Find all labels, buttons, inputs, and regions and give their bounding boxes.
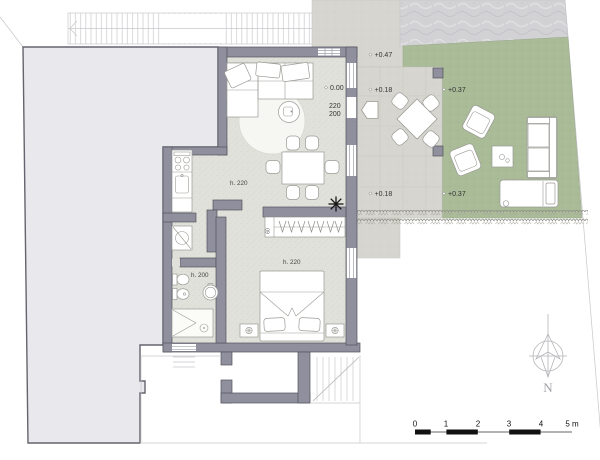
scale-segment (509, 430, 540, 435)
entry-door-opening (347, 97, 356, 118)
wall-east (346, 47, 357, 345)
compass-north-label: N (543, 380, 553, 395)
room-height-bath: h. 200 (191, 272, 209, 279)
dining-chair (266, 161, 280, 174)
scale-unit-label: 5 m (565, 420, 579, 429)
nightstand-left (240, 324, 258, 337)
scale-tick-2: 2 (476, 420, 481, 429)
window-bedroom-east (347, 248, 356, 278)
window-south (172, 344, 196, 351)
scale-bar: 0 1 2 3 4 5 m (413, 420, 579, 435)
fence-hatch-band (68, 13, 312, 44)
svg-text:+0.37: +0.37 (448, 191, 466, 198)
bath-door-opening (172, 259, 180, 267)
property-line-northwest (0, 17, 23, 47)
opening-dim-width: 220 (329, 103, 341, 110)
nightstand-right (326, 324, 344, 337)
floor-plan-drawing: 60 (0, 0, 600, 460)
svg-text:+0.18: +0.18 (375, 191, 393, 198)
window-living-east (347, 63, 356, 88)
window-dining-east (347, 145, 356, 176)
wall-hall-a (213, 200, 242, 210)
kitchen-counter (172, 150, 192, 212)
opening-dim-height: 200 (329, 111, 341, 118)
room-height-bedroom: h. 220 (283, 259, 301, 266)
room-height-living: h. 220 (230, 180, 248, 187)
svg-text:0.00: 0.00 (330, 85, 344, 92)
scale-segment (446, 430, 477, 435)
scale-tick-3: 3 (507, 420, 512, 429)
hedge-border (352, 210, 588, 227)
scale-tick-4: 4 (539, 420, 544, 429)
flower-icon (246, 327, 252, 333)
sun-lounger (500, 180, 558, 207)
coffee-table (279, 102, 300, 123)
floor-plan-canvas: 60 (0, 0, 600, 460)
wall-west (163, 147, 172, 352)
dining-chair (306, 136, 319, 150)
svg-text:+0.37: +0.37 (448, 87, 466, 94)
north-arrow-icon: N (529, 314, 567, 395)
scale-tick-0: 0 (413, 420, 418, 429)
wardrobe: 60 (265, 217, 345, 237)
bed (260, 271, 324, 341)
flower-icon (332, 327, 338, 333)
scale-segment (415, 430, 431, 435)
wall-dining-bedroom (263, 207, 346, 217)
dining-chair (325, 161, 339, 174)
exterior-stairs (313, 357, 359, 401)
dining-table (282, 152, 324, 184)
dining-chair (287, 136, 300, 150)
wardrobe-depth-label: 60 (266, 228, 272, 234)
garden-sofa (527, 117, 557, 178)
wall-laundry (163, 213, 196, 222)
dining-chair (287, 186, 300, 200)
basement-stair-walls (221, 352, 310, 403)
toilet (173, 274, 190, 285)
washing-machine (172, 226, 192, 250)
wall-bath-north (180, 258, 216, 267)
svg-text:+0.18: +0.18 (375, 87, 393, 94)
terrace-outline-lines (140, 355, 487, 443)
pergola-post (433, 68, 443, 78)
window-north (318, 49, 340, 56)
wall-west-living (218, 47, 227, 155)
pergola-post (433, 146, 443, 156)
bidet (173, 289, 190, 300)
scale-tick-1: 1 (444, 420, 449, 429)
wall-hall-b (207, 210, 217, 252)
garden-side-table (492, 146, 513, 167)
star-symbol-icon (329, 197, 344, 212)
wall-bedroom-west (216, 217, 226, 343)
svg-text:+0.47: +0.47 (375, 52, 393, 59)
dining-chair (306, 186, 319, 200)
shower (172, 309, 213, 337)
